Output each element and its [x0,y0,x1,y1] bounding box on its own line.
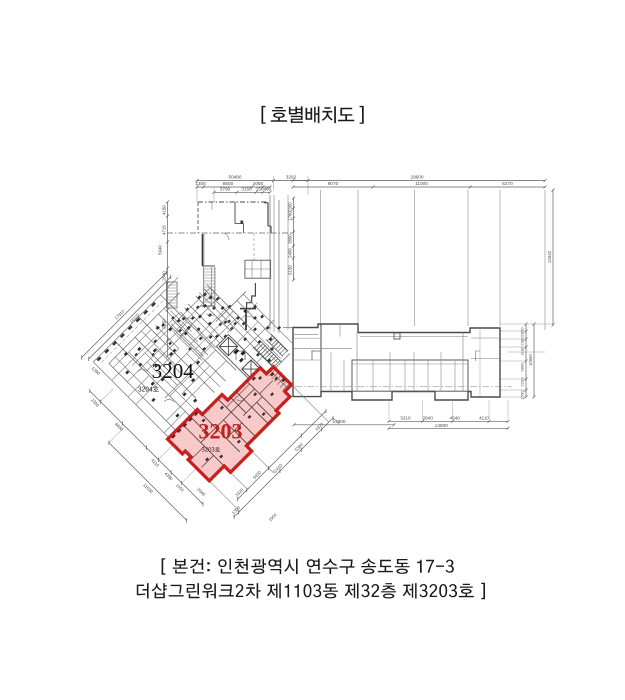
svg-text:50480: 50480 [228,175,241,180]
svg-text:5940: 5940 [158,245,163,255]
svg-text:4180: 4180 [162,205,167,215]
svg-text:3180: 3180 [520,346,525,356]
svg-text:3790: 3790 [220,187,231,192]
svg-text:1500: 1500 [520,390,525,400]
svg-text:6860: 6860 [520,362,525,372]
svg-text:8500: 8500 [223,181,234,186]
svg-text:9070: 9070 [328,181,339,186]
svg-text:2540: 2540 [162,271,167,281]
svg-text:2840: 2840 [423,416,434,421]
svg-text:3210: 3210 [400,416,411,421]
svg-text:11000: 11000 [415,181,428,186]
svg-text:6270: 6270 [502,181,513,186]
svg-text:14342: 14342 [547,250,552,263]
svg-text:3204: 3204 [152,359,195,383]
svg-text:14800: 14800 [435,423,448,428]
svg-text:2380: 2380 [520,336,525,346]
svg-text:2850: 2850 [520,327,525,337]
svg-text:4716: 4716 [162,225,167,235]
svg-text:2290: 2290 [520,377,525,387]
svg-text:4110: 4110 [479,416,489,421]
svg-text:3292: 3292 [286,175,297,180]
svg-text:60: 60 [266,187,272,192]
svg-text:3150: 3150 [241,187,252,192]
svg-text:2060: 2060 [253,181,264,186]
svg-text:2650: 2650 [162,319,167,329]
svg-text:14800: 14800 [332,419,345,424]
svg-text:3203: 3203 [199,419,243,444]
svg-text:4640: 4640 [449,416,460,421]
svg-text:10560: 10560 [528,354,533,366]
svg-text:29600: 29600 [410,175,423,180]
